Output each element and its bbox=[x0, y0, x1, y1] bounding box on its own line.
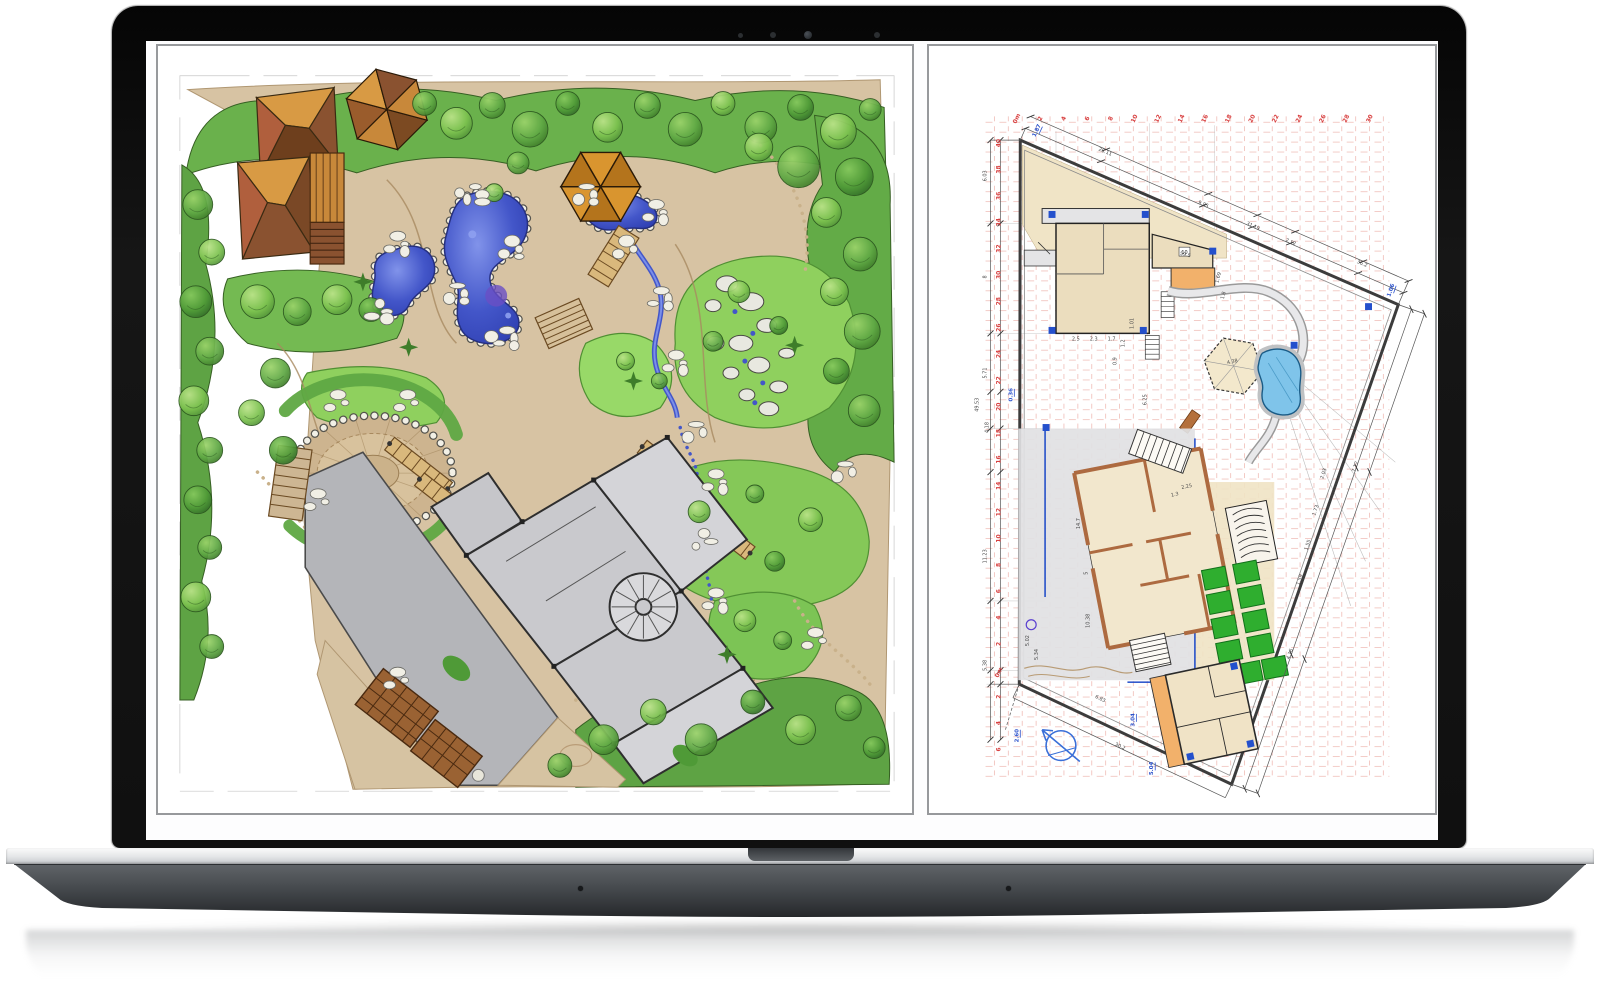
svg-text:10.38: 10.38 bbox=[1086, 614, 1092, 628]
svg-text:5.02: 5.02 bbox=[1025, 635, 1031, 646]
webcam-icon bbox=[804, 31, 812, 39]
svg-text:8: 8 bbox=[995, 563, 1002, 567]
hinge-notch bbox=[748, 848, 854, 861]
svg-text:36: 36 bbox=[995, 192, 1002, 200]
masterplan-sketch-panel bbox=[156, 44, 914, 815]
cad-site-plan-image: 10 bbox=[929, 46, 1435, 813]
svg-text:4.18: 4.18 bbox=[985, 422, 991, 433]
svg-text:5.38: 5.38 bbox=[983, 660, 989, 671]
svg-text:5: 5 bbox=[1084, 572, 1090, 575]
house-annex-deck bbox=[310, 153, 344, 264]
base-body bbox=[6, 864, 1594, 926]
svg-text:22: 22 bbox=[995, 376, 1002, 384]
svg-text:49.53: 49.53 bbox=[975, 398, 981, 412]
svg-text:6: 6 bbox=[995, 589, 1002, 593]
svg-text:4: 4 bbox=[995, 721, 1002, 725]
hip-roof-house-2 bbox=[238, 157, 315, 259]
screw-icon bbox=[578, 886, 583, 891]
svg-text:20: 20 bbox=[995, 403, 1002, 411]
svg-text:11.23: 11.23 bbox=[983, 549, 989, 563]
svg-text:26: 26 bbox=[995, 323, 1002, 331]
svg-text:2: 2 bbox=[995, 695, 1002, 699]
svg-text:0.9: 0.9 bbox=[1113, 357, 1119, 365]
svg-text:6.25: 6.25 bbox=[1142, 394, 1148, 405]
svg-text:2.5: 2.5 bbox=[1072, 336, 1080, 342]
svg-text:2: 2 bbox=[995, 642, 1002, 646]
svg-text:1.01: 1.01 bbox=[1129, 318, 1135, 329]
svg-text:2.3: 2.3 bbox=[1090, 336, 1098, 342]
svg-text:1.2: 1.2 bbox=[1120, 339, 1126, 347]
svg-text:3.04: 3.04 bbox=[1130, 713, 1136, 727]
svg-text:2.60: 2.60 bbox=[1014, 729, 1020, 743]
cad-plan-panel: 10 bbox=[927, 44, 1437, 815]
lower-building bbox=[1150, 660, 1258, 768]
svg-text:32: 32 bbox=[995, 244, 1002, 252]
svg-text:5.71: 5.71 bbox=[983, 368, 989, 379]
svg-text:6.03: 6.03 bbox=[983, 170, 989, 181]
svg-text:38: 38 bbox=[995, 165, 1002, 173]
screw-icon bbox=[1006, 886, 1011, 891]
svg-text:4: 4 bbox=[995, 616, 1002, 620]
svg-text:18: 18 bbox=[995, 429, 1002, 437]
laptop-base bbox=[6, 846, 1594, 932]
svg-text:28: 28 bbox=[995, 297, 1002, 305]
svg-text:14: 14 bbox=[995, 482, 1002, 490]
microphone-dot-icon bbox=[738, 33, 743, 38]
laptop-display: 10 bbox=[146, 41, 1438, 840]
svg-text:0.36: 0.36 bbox=[1008, 388, 1014, 402]
svg-text:34: 34 bbox=[995, 218, 1002, 226]
page: 10 bbox=[0, 0, 1600, 995]
svg-text:16: 16 bbox=[995, 455, 1002, 463]
lower-stairs bbox=[1129, 633, 1171, 671]
sensor-dot-icon bbox=[770, 32, 776, 38]
svg-text:24: 24 bbox=[995, 350, 1002, 358]
svg-text:1.7: 1.7 bbox=[1108, 336, 1116, 342]
svg-text:40: 40 bbox=[995, 139, 1002, 147]
svg-text:6: 6 bbox=[995, 747, 1002, 751]
laptop-screen-bezel: 10 bbox=[112, 6, 1466, 848]
pool bbox=[1258, 349, 1301, 415]
svg-text:14.7: 14.7 bbox=[1076, 518, 1082, 529]
svg-text:30: 30 bbox=[995, 271, 1002, 279]
table-reflection bbox=[26, 930, 1574, 990]
svg-text:8: 8 bbox=[983, 275, 989, 278]
camera-indicator-icon bbox=[874, 32, 880, 38]
svg-text:12: 12 bbox=[995, 508, 1002, 516]
svg-text:5.04: 5.04 bbox=[1149, 761, 1155, 775]
svg-text:5.34: 5.34 bbox=[1034, 649, 1040, 660]
svg-text:10: 10 bbox=[995, 534, 1002, 542]
garden-sketch-image bbox=[158, 46, 912, 813]
